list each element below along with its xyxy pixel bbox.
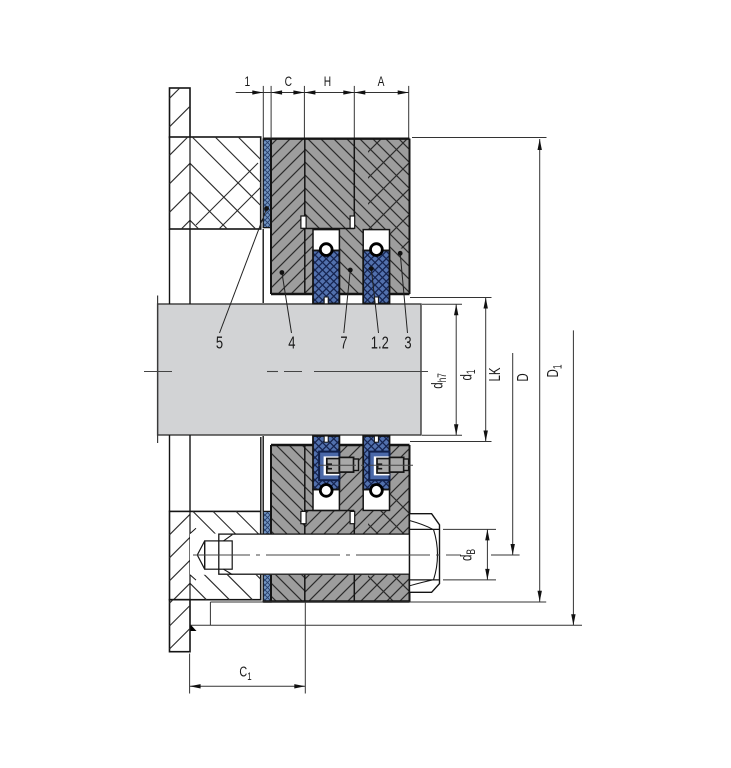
- svg-text:C: C: [285, 73, 292, 89]
- svg-text:D: D: [513, 373, 531, 381]
- svg-text:A: A: [378, 73, 385, 89]
- svg-text:5: 5: [216, 334, 223, 354]
- svg-text:H: H: [324, 73, 331, 89]
- svg-text:7: 7: [340, 334, 347, 354]
- svg-text:1.2: 1.2: [371, 334, 389, 354]
- svg-text:4: 4: [288, 334, 295, 354]
- svg-text:1: 1: [244, 73, 250, 89]
- svg-text:LK: LK: [485, 367, 503, 382]
- svg-text:3: 3: [404, 334, 411, 354]
